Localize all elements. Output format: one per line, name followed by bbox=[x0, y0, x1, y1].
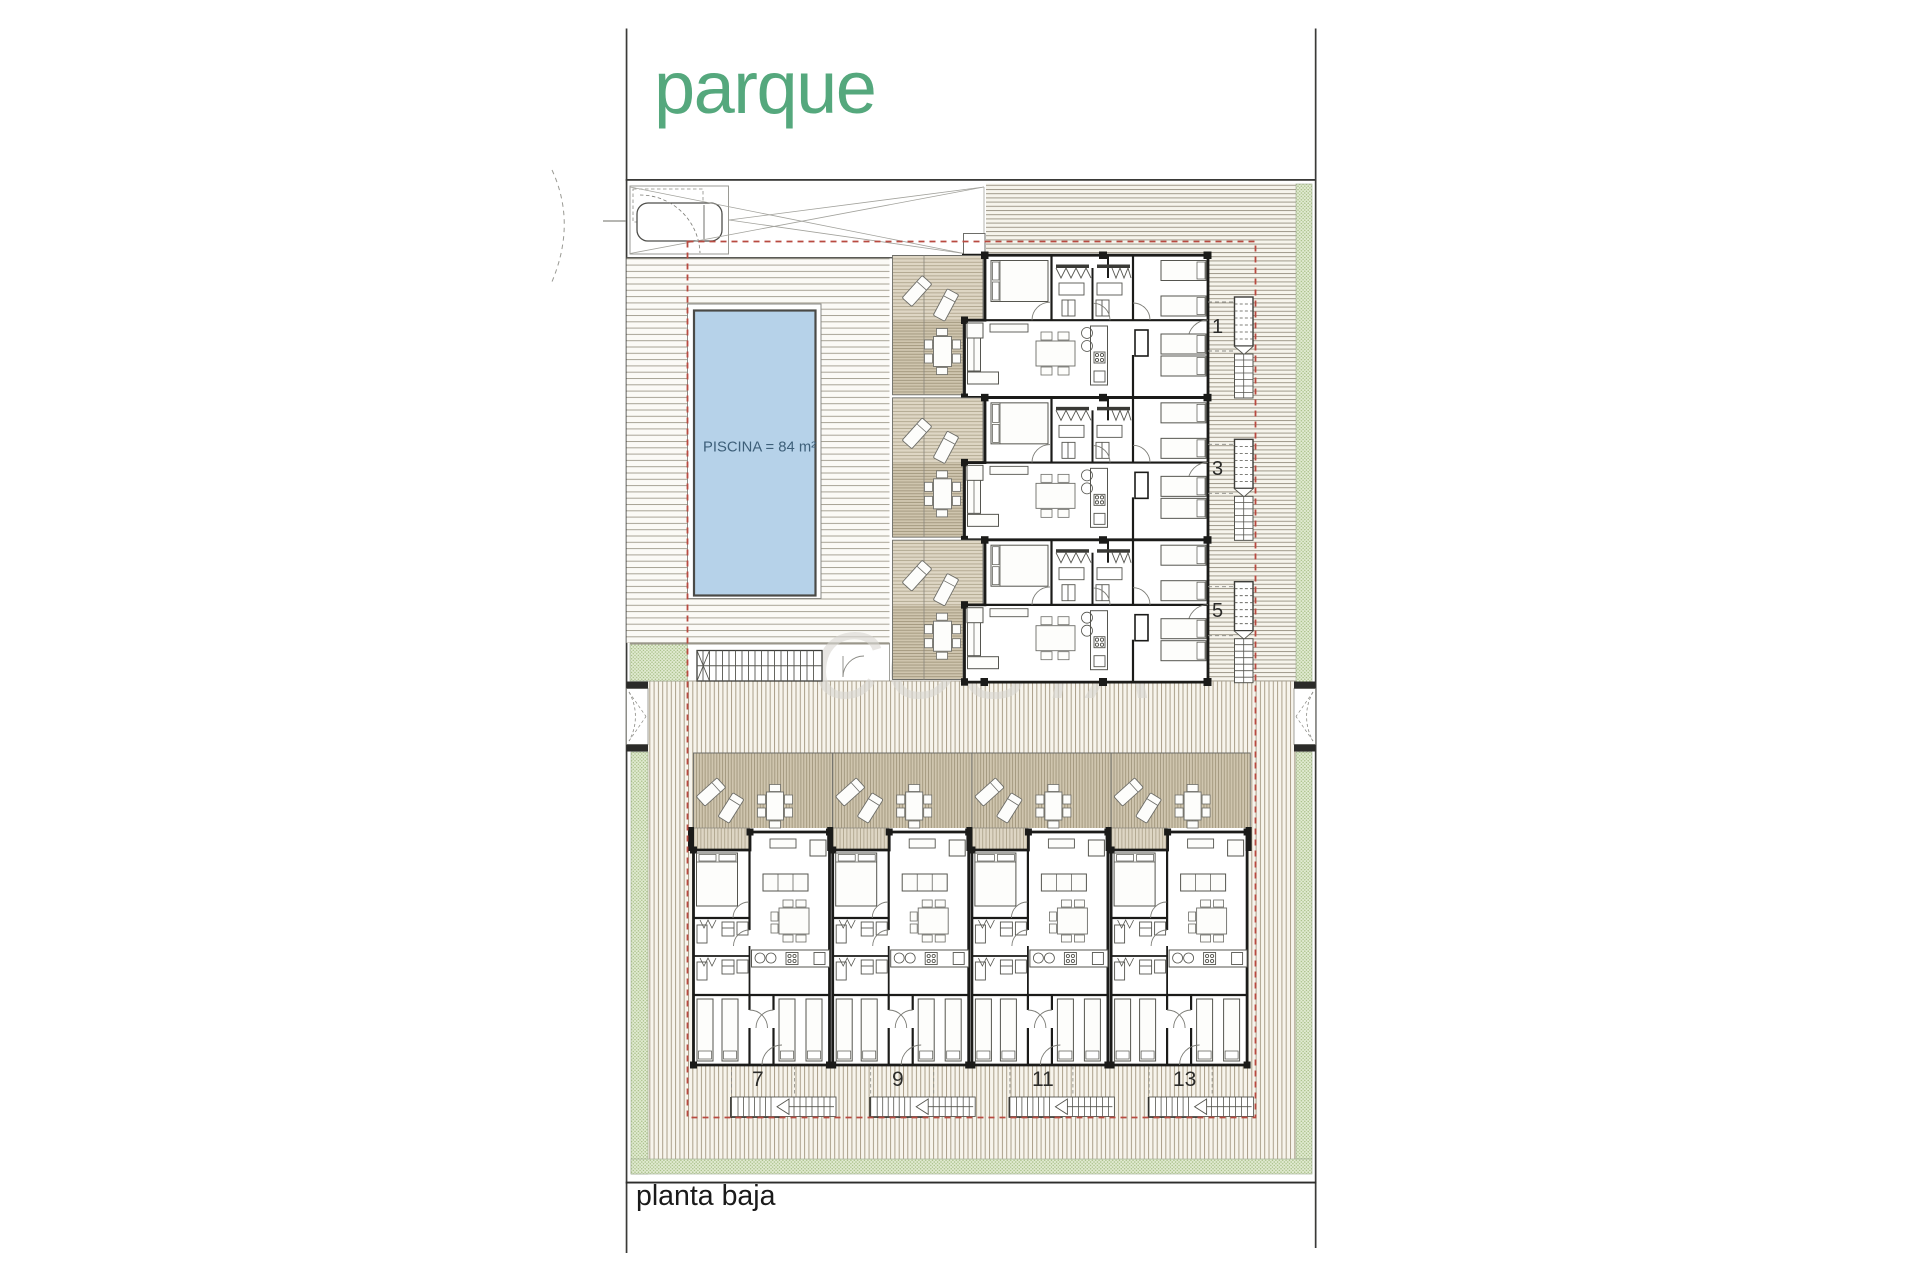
svg-text:planta baja: planta baja bbox=[636, 1180, 776, 1212]
svg-text:7: 7 bbox=[752, 1068, 764, 1091]
svg-text:PISCINA = 84 m²: PISCINA = 84 m² bbox=[703, 440, 816, 456]
svg-text:1: 1 bbox=[1212, 316, 1223, 338]
svg-text:9: 9 bbox=[892, 1068, 904, 1091]
svg-text:5: 5 bbox=[1212, 600, 1223, 622]
svg-text:13: 13 bbox=[1173, 1068, 1196, 1091]
svg-text:3: 3 bbox=[1212, 458, 1223, 480]
svg-text:parque: parque bbox=[654, 46, 875, 129]
svg-text:11: 11 bbox=[1032, 1068, 1054, 1091]
